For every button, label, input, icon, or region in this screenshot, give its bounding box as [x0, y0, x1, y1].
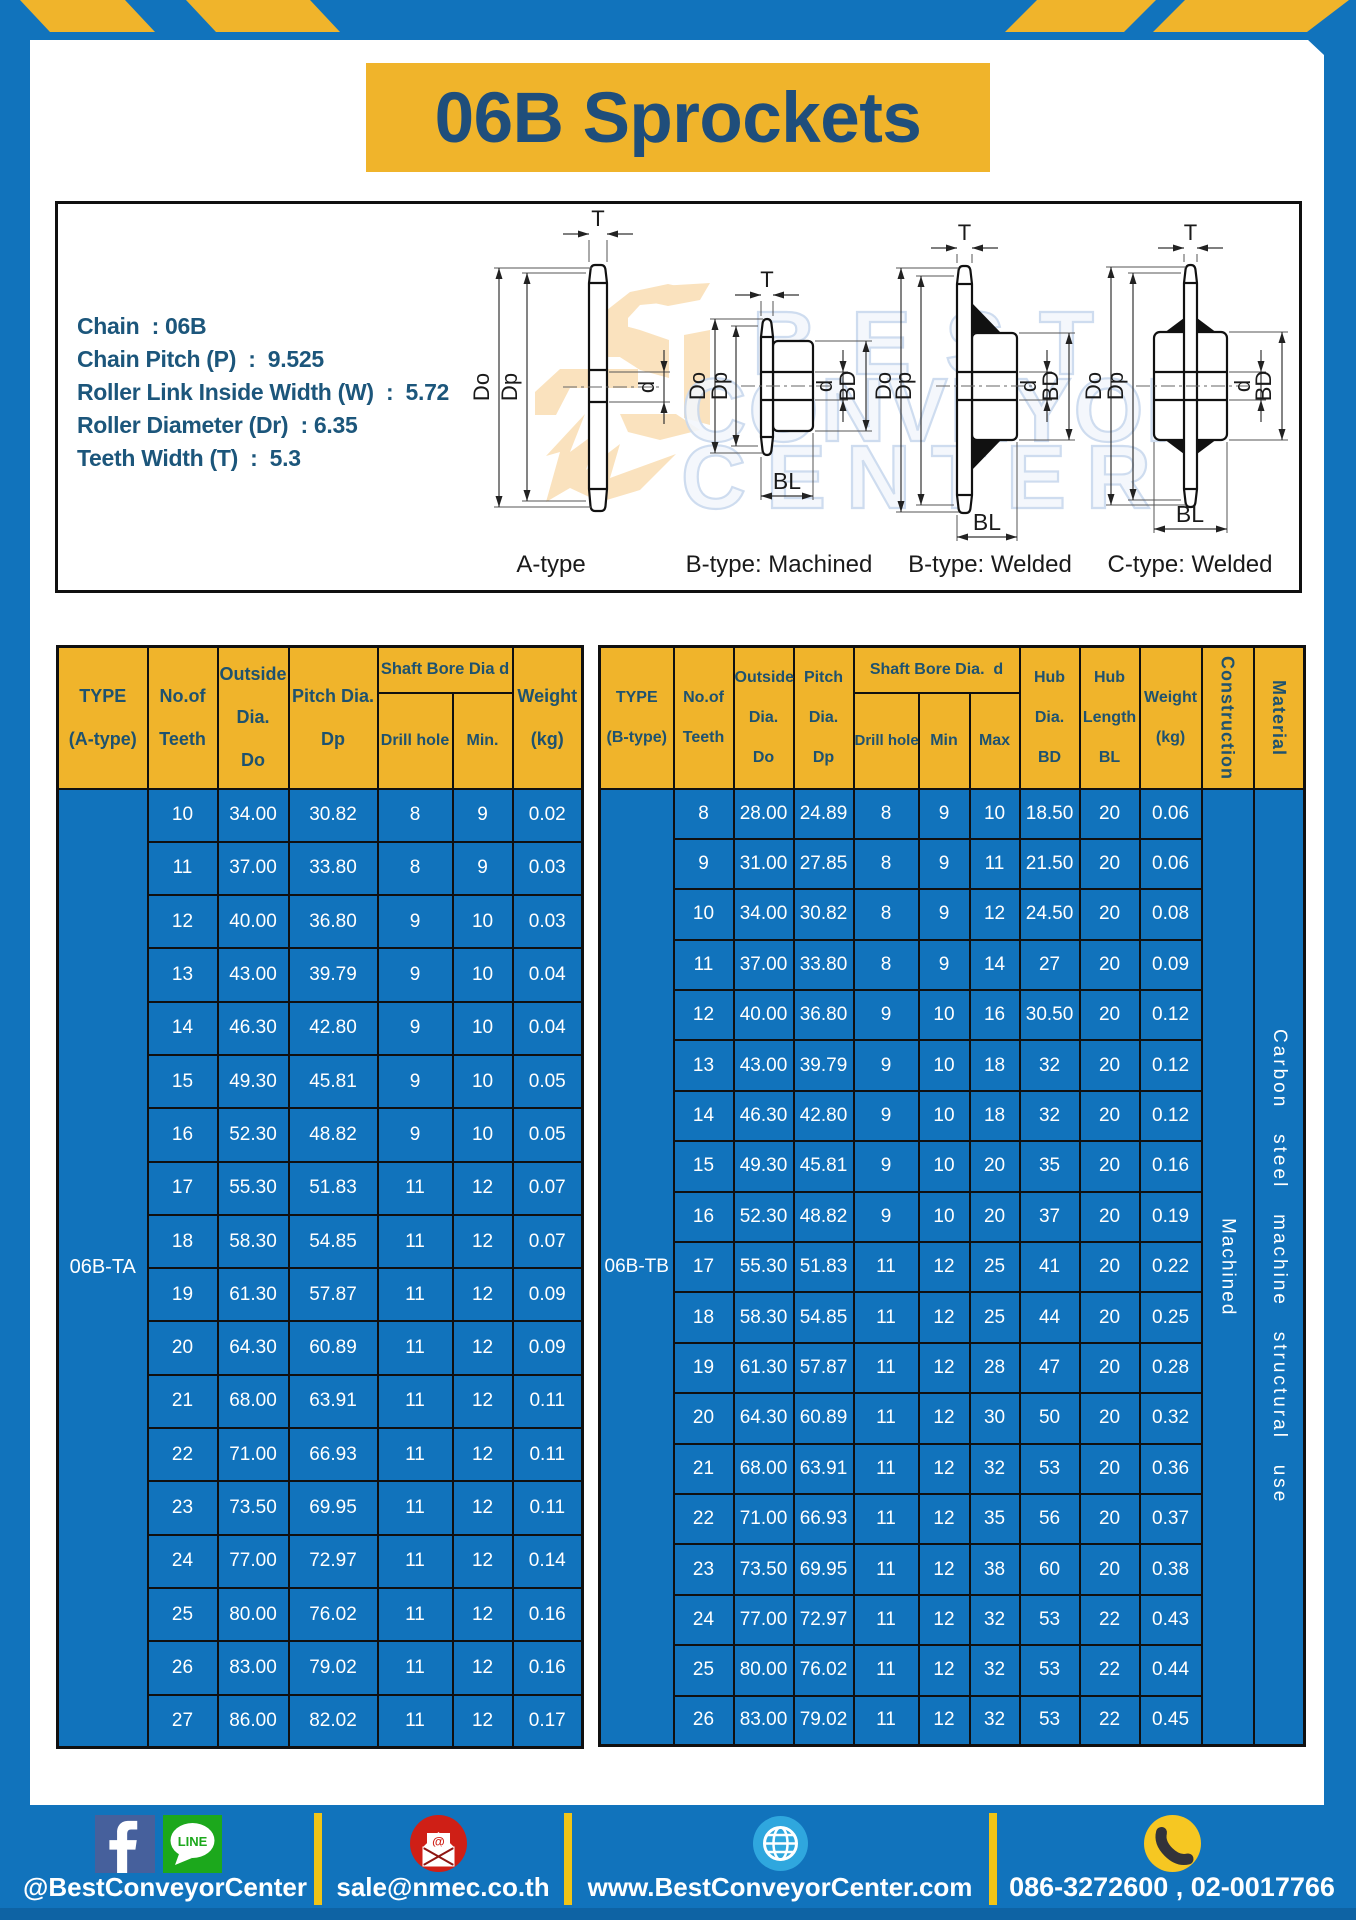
- svg-text:A-type: A-type: [516, 551, 585, 578]
- svg-text:d: d: [812, 380, 837, 392]
- svg-text:T: T: [958, 220, 971, 245]
- svg-text:B-type: Machined: B-type: Machined: [686, 551, 873, 578]
- svg-text:BL: BL: [773, 468, 801, 494]
- svg-text:BL: BL: [973, 509, 1001, 535]
- svg-text:T: T: [760, 267, 773, 292]
- svg-text:BD: BD: [835, 371, 860, 402]
- svg-text:B-type: Welded: B-type: Welded: [908, 551, 1072, 578]
- svg-text:BD: BD: [1038, 371, 1063, 402]
- svg-text:Dp: Dp: [707, 372, 732, 400]
- svg-text:Dp: Dp: [891, 372, 916, 400]
- svg-text:T: T: [1184, 220, 1197, 245]
- svg-text:d: d: [634, 381, 659, 393]
- svg-text:LINE: LINE: [178, 1834, 208, 1849]
- svg-text:C-type: Welded: C-type: Welded: [1108, 551, 1273, 578]
- svg-text:BL: BL: [1176, 501, 1204, 527]
- svg-text:T: T: [591, 206, 604, 231]
- svg-text:Do: Do: [469, 373, 494, 401]
- svg-text:CENTER: CENTER: [681, 428, 1171, 528]
- svg-text:Dp: Dp: [497, 373, 522, 401]
- svg-text:Dp: Dp: [1103, 372, 1128, 400]
- svg-text:BD: BD: [1251, 371, 1276, 402]
